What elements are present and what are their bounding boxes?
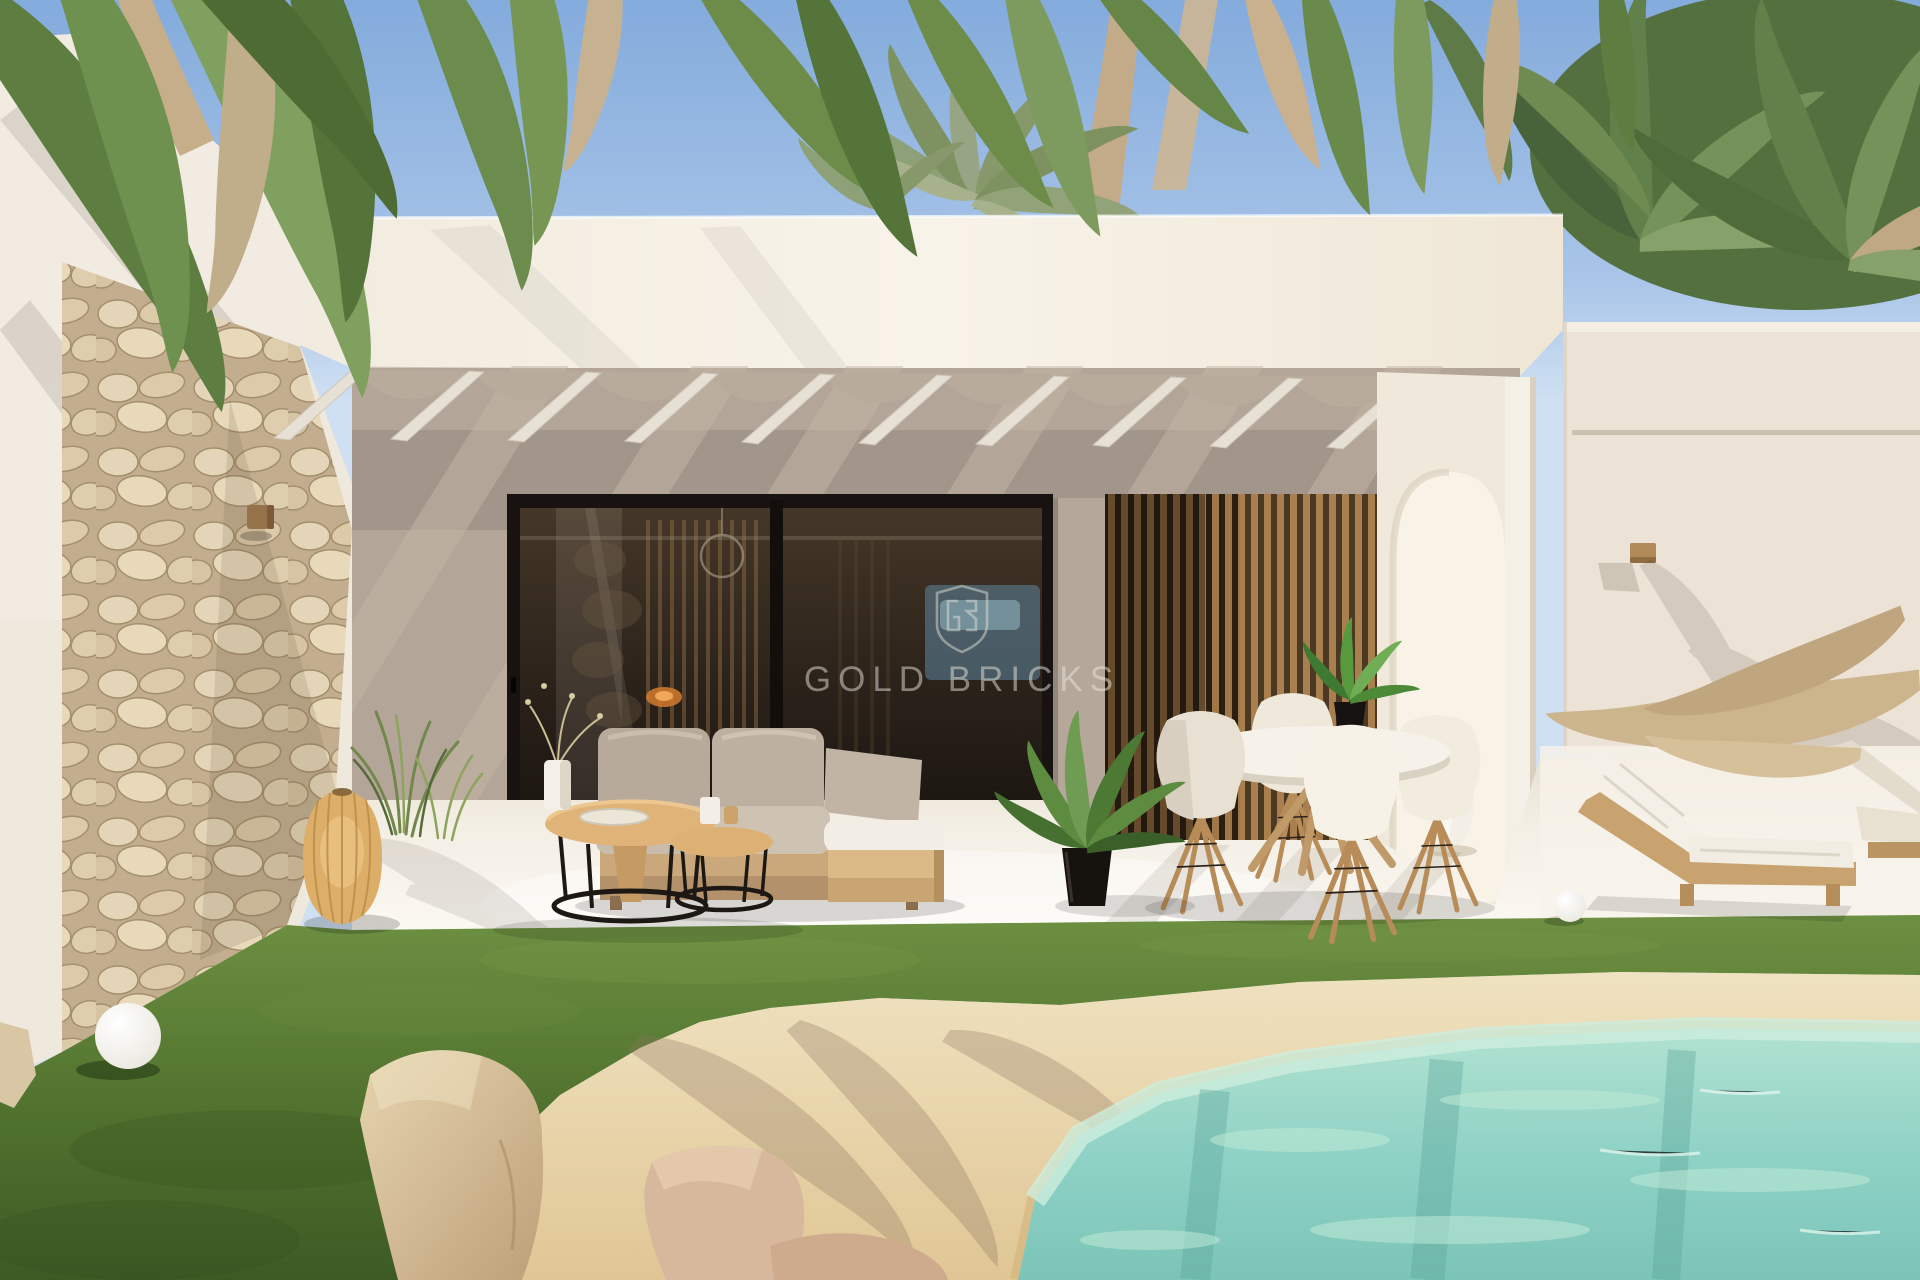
render-canvas: GOLD BRICKS (0, 0, 1920, 1280)
arch-wall (1377, 372, 1540, 918)
watermark-text: GOLD BRICKS (804, 660, 1120, 699)
daybed (824, 820, 944, 902)
main-fascia (300, 215, 1563, 376)
villa-render-photo: GOLD BRICKS (0, 0, 1920, 1280)
